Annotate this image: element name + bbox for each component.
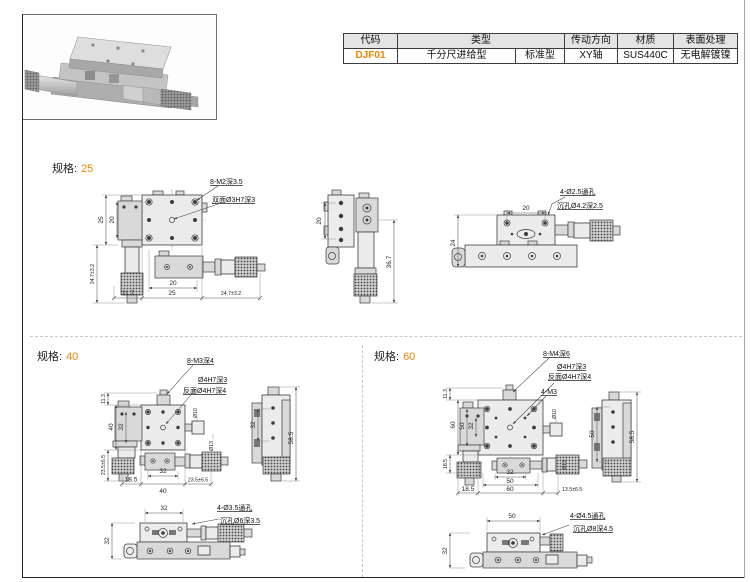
dim-60-bottom-view-left: 32	[442, 547, 449, 555]
dim-40-side-a: 32	[250, 421, 257, 429]
dim-25-bottom-a: 11.7	[122, 290, 135, 297]
view-25-top: 25 20 24.7±3.2 20 11.7 25 24.7±3.2 8-M2深…	[90, 177, 265, 303]
dim-40-bottom-b: 18.5	[125, 477, 138, 484]
view-60-side: 50 58.5	[589, 392, 641, 482]
value-finish: 无电解镀镍	[674, 49, 738, 64]
drawing-spec-40: 11.3 40 32 23.5±6.5 32 18.5 40 23.5±6.5 …	[30, 345, 360, 580]
header-finish: 表面处理	[674, 34, 738, 49]
annotation-60-m3: 4-M3	[541, 389, 557, 396]
dim-40-right-b: Ø13	[209, 441, 215, 451]
dim-60-bottom-view-top: 50	[508, 513, 516, 520]
dim-60-left-e: 18.5	[443, 459, 449, 469]
dim-60-bottom-a: 32	[506, 469, 514, 476]
view-25-front: 20 24 4-Ø2.5通孔 沉孔Ø4.2深2.5	[450, 187, 620, 267]
value-type-sub: 标准型	[516, 49, 565, 64]
page-border-bottom	[22, 577, 744, 578]
spec-word: 规格:	[374, 351, 399, 363]
dim-60-side-a: 50	[589, 430, 596, 438]
product-photo-illustration	[23, 15, 216, 119]
section-label-25: 规格:25	[52, 160, 93, 176]
dim-40-left-d: 23.5±6.5	[101, 455, 107, 475]
annotation-40-holes: 8-M3深4	[187, 356, 214, 365]
section-separator-vertical	[362, 345, 363, 577]
annotation-25-front-a: 4-Ø2.5通孔	[560, 187, 595, 196]
spec-size-25: 25	[81, 163, 93, 175]
dim-25-left-lower: 24.7±3.2	[90, 264, 96, 284]
annotation-40-bottom-a: 4-Ø3.5通孔	[217, 503, 252, 512]
dim-40-right-a: Ø10	[193, 408, 199, 418]
value-code: DJF01	[344, 49, 398, 64]
dim-60-left-b: 60	[450, 421, 457, 429]
header-drive: 传动方向	[565, 34, 618, 49]
dim-25-left-inner: 20	[109, 216, 116, 224]
annotation-25-center: 双面Ø3H7深3	[212, 195, 255, 204]
dim-60-bottom-e: 13.5±6.5	[562, 487, 582, 493]
header-type: 类型	[398, 34, 565, 49]
annotation-60-holes: 8-M4深6	[543, 349, 570, 358]
catalog-page: 代码 类型 传动方向 材质 表面处理 DJF01 千分尺进给型 标准型 XY轴 …	[0, 0, 750, 582]
annotation-60-bottom-b: 沉孔Ø8深4.5	[573, 524, 613, 533]
value-drive: XY轴	[565, 49, 618, 64]
spec-size-60: 60	[403, 351, 415, 363]
page-border-right	[744, 0, 745, 578]
section-label-60: 规格:60	[374, 348, 415, 364]
drawing-spec-60: 11.3 60 50 32 18.5 32 50 18.5 60 1	[370, 345, 745, 580]
spec-word: 规格:	[52, 163, 77, 175]
annotation-40-pin: Ø4H7深3	[198, 375, 227, 384]
dim-40-left-c: 32	[118, 423, 125, 431]
view-60-bottom: 50 32 4-Ø4.5通孔 沉孔Ø8深4.5	[442, 511, 613, 568]
spec-word: 规格:	[37, 351, 62, 363]
drawing-spec-25: 25 20 24.7±3.2 20 11.7 25 24.7±3.2 8-M2深…	[60, 170, 620, 322]
spec-table-header-row: 代码 类型 传动方向 材质 表面处理	[344, 34, 738, 49]
view-60-top: 11.3 60 50 32 18.5 32 50 18.5 60 1	[443, 349, 591, 496]
annotation-60-pin: Ø4H7深3	[557, 362, 586, 371]
view-40-side: 32 58.5	[250, 387, 300, 481]
value-material: SUS440C	[618, 49, 674, 64]
value-type-main: 千分尺进给型	[398, 49, 516, 64]
dim-40-bottom-a: 32	[159, 468, 167, 475]
spec-table-value-row: DJF01 千分尺进给型 标准型 XY轴 SUS440C 无电解镀镍	[344, 49, 738, 64]
dim-25-side-right: 36.7	[386, 255, 393, 268]
section-label-40: 规格:40	[37, 348, 78, 364]
dim-40-bottom-view-top: 32	[160, 505, 168, 512]
dim-40-left-b: 40	[108, 423, 115, 431]
dim-25-bottom-c: 24.7±3.2	[221, 291, 241, 297]
spec-table: 代码 类型 传动方向 材质 表面处理 DJF01 千分尺进给型 标准型 XY轴 …	[343, 33, 738, 64]
dim-40-side-b: 58.5	[288, 431, 295, 444]
dim-25-bottom-inner: 20	[169, 280, 177, 287]
annotation-25-front-b: 沉孔Ø4.2深2.5	[557, 201, 603, 210]
dim-60-bottom-b: 50	[506, 478, 514, 485]
dim-60-left-c: 50	[459, 422, 466, 430]
dim-25-front-left: 24	[450, 239, 457, 247]
annotation-60-bottom-a: 4-Ø4.5通孔	[570, 511, 605, 520]
dim-60-bottom-c: 18.5	[462, 486, 475, 493]
view-40-bottom: 32 32 4-Ø3.5通孔 沉孔Ø6深3.5	[104, 503, 260, 559]
page-border-left	[22, 14, 23, 577]
view-25-side: 20 36.7	[316, 190, 398, 303]
view-40-top: 11.3 40 32 23.5±6.5 32 18.5 40 23.5±6.5 …	[101, 356, 228, 495]
header-code: 代码	[344, 34, 398, 49]
dim-25-front-top: 20	[522, 205, 530, 212]
section-separator-horizontal	[30, 336, 742, 337]
spec-size-40: 40	[66, 351, 78, 363]
dim-60-left-d: 32	[468, 422, 475, 430]
dim-40-left-a: 11.3	[101, 394, 107, 404]
annotation-40-pin-back: 反面Ø4H7深4	[183, 386, 226, 395]
dim-60-right-b: Ø13	[562, 460, 568, 470]
dim-60-right-a: Ø10	[552, 409, 558, 419]
dim-40-bottom-view-left: 32	[104, 537, 111, 545]
annotation-60-pin-back: 反面Ø4H7深4	[548, 372, 591, 381]
product-photo	[22, 14, 217, 120]
annotation-40-bottom-b: 沉孔Ø6深3.5	[220, 516, 260, 525]
dim-40-bottom-d: 23.5±6.5	[188, 478, 208, 484]
dim-25-bottom-b: 25	[168, 290, 176, 297]
stage-photo	[25, 37, 198, 110]
annotation-25-holes: 8-M2深3.5	[210, 177, 243, 186]
dim-25-side-left: 20	[316, 217, 323, 225]
dim-60-bottom-d: 60	[506, 486, 514, 493]
dim-25-left-outer: 25	[98, 216, 105, 224]
header-material: 材质	[618, 34, 674, 49]
dim-60-side-b: 58.5	[629, 430, 636, 443]
dim-40-bottom-c: 40	[159, 488, 167, 495]
dim-60-left-a: 11.3	[443, 389, 449, 399]
